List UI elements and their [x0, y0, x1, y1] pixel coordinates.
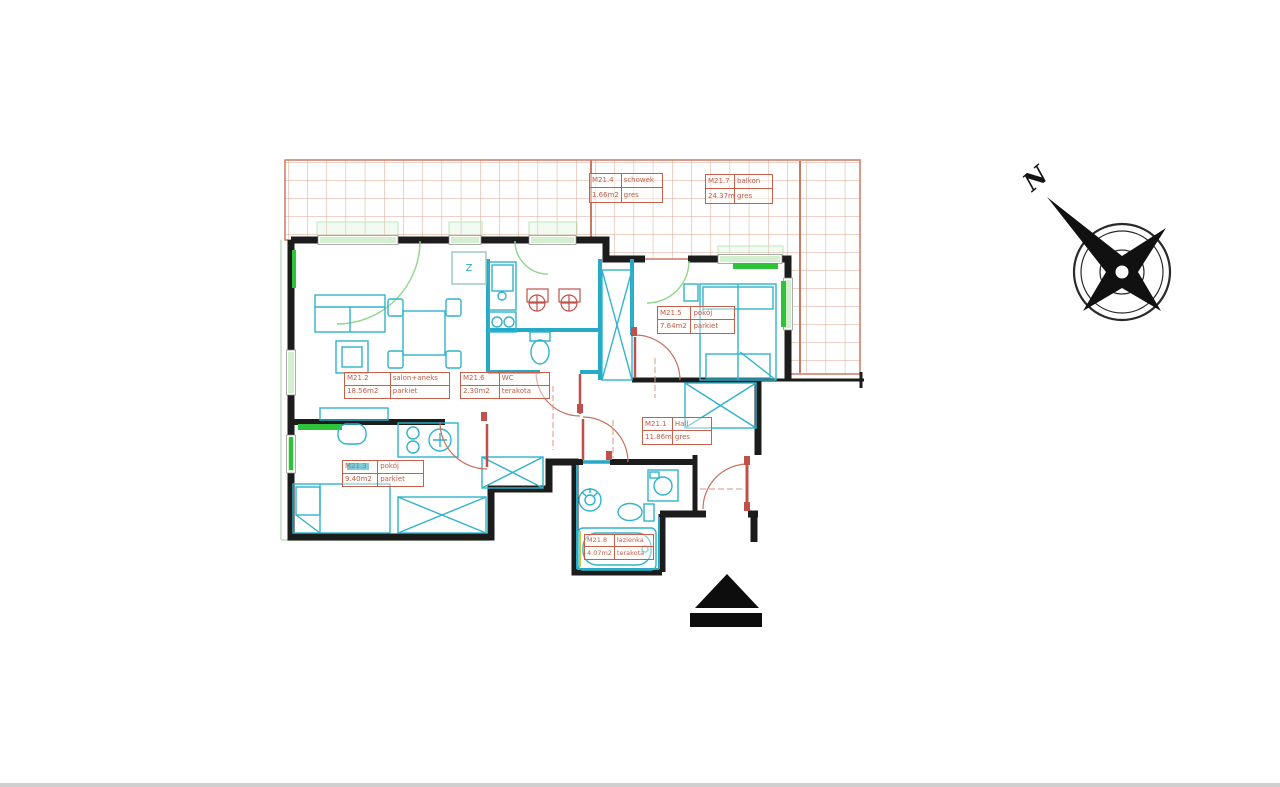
room-area: 2.30m2: [461, 386, 500, 399]
room-id: M21.1: [643, 418, 673, 431]
room-floor: gres: [622, 188, 662, 202]
highlight-mark: [347, 463, 369, 470]
room-floor: parkiet: [391, 386, 449, 399]
room-name: pokój: [691, 307, 734, 320]
room-name: WC: [500, 373, 549, 386]
bathroom-toilet: [618, 504, 654, 522]
side-table: [336, 341, 368, 373]
room-label-schowek: M21.4 schowek 1.66m2 gres: [589, 173, 663, 203]
sofa: [315, 295, 385, 332]
kitchenette-unit: [398, 423, 458, 457]
room-id: M21.6: [461, 373, 500, 386]
furniture-fixtures: [293, 252, 776, 570]
compass-rose-icon: [1047, 197, 1170, 320]
entrance-marker-icon: [690, 574, 762, 627]
room-label-balkon: M21.7 balkon 24.37m2 gres: [705, 174, 773, 204]
room-label-bedroom: M21.5 pokój 7.64m2 parkiet: [657, 306, 735, 334]
red-basin-fixtures: [527, 289, 580, 311]
room-label-salon: M21.2 salon+aneks 18.56m2 parkiet: [344, 372, 450, 399]
washing-machine: [648, 470, 678, 501]
room-name: Hall: [673, 418, 711, 431]
room-floor: gres: [735, 189, 772, 203]
room-area: 18.56m2: [345, 386, 391, 399]
room-name: salon+aneks: [391, 373, 449, 386]
room-id: M21.5: [658, 307, 691, 320]
room-name: pokój: [378, 461, 423, 474]
room-floor: gres: [673, 431, 711, 444]
room-label-hall: M21.1 Hall 11.86m2 gres: [642, 417, 712, 445]
room-area: 1.66m2: [590, 188, 622, 202]
room-name: schowek: [622, 174, 662, 188]
room-name: balkon: [735, 175, 772, 189]
wc-toilet: [530, 332, 550, 364]
washbasin: [579, 488, 601, 511]
room-area: 4.07m2: [585, 547, 615, 559]
room-floor: parkiet: [691, 320, 734, 333]
room-bed: [293, 484, 390, 533]
room-area: 24.37m2: [706, 189, 735, 203]
room-floor: parkiet: [378, 474, 423, 487]
room-area: 9.40m2: [343, 474, 378, 487]
z-unit-label: Z: [452, 252, 486, 284]
room-area: 7.64m2: [658, 320, 691, 333]
room-area: 11.86m2: [643, 431, 673, 444]
room-id: M21.8: [585, 535, 615, 547]
floor-plan-drawing: [0, 0, 1280, 787]
page-bottom-edge: [0, 783, 1280, 787]
floor-plan-page: M21.4 schowek 1.66m2 gres M21.7 balkon 2…: [0, 0, 1280, 787]
room-floor: terakota: [500, 386, 549, 399]
room-label-lazienka: M21.8 łazienka 4.07m2 terakota: [584, 534, 654, 560]
room-id: M21.7: [706, 175, 735, 189]
room-name: łazienka: [615, 535, 653, 547]
dining-table-chairs: [388, 299, 461, 368]
room-label-wc: M21.6 WC 2.30m2 terakota: [460, 372, 550, 399]
room-floor: terakota: [615, 547, 653, 559]
kitchen-sink-unit: [489, 262, 516, 310]
room-id: M21.2: [345, 373, 391, 386]
room-id: M21.4: [590, 174, 622, 188]
